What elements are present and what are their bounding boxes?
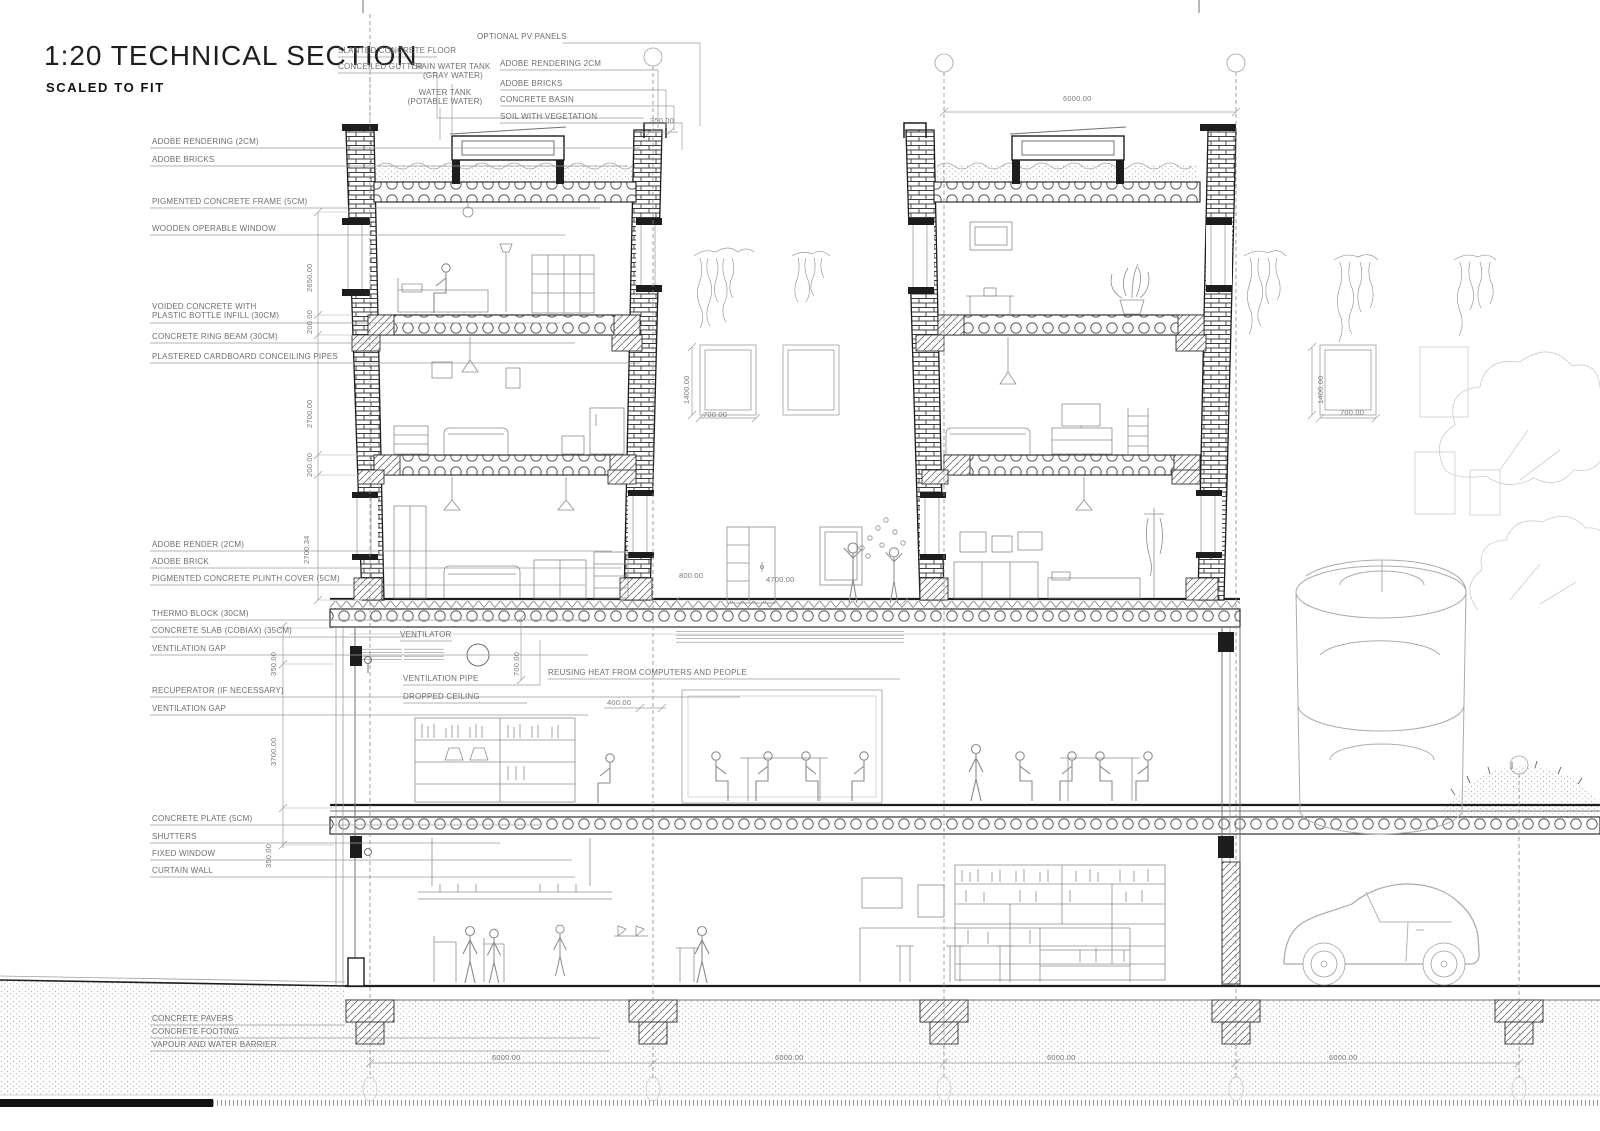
office-floor <box>415 690 1140 803</box>
callout-soil-with-vegetation: SOIL WITH VEGETATION <box>500 112 597 121</box>
dim-window-width-left: 700.00 <box>703 410 727 419</box>
dim-window-width-right: 700.00 <box>1340 408 1364 417</box>
callout-optional-pv-panels: OPTIONAL PV PANELS <box>477 32 567 41</box>
dim-slab-200b: 200.00 <box>305 453 314 477</box>
callout-ventilator: VENTILATOR <box>400 630 452 639</box>
border-strip <box>0 1099 1600 1107</box>
dim-slabzone-350b: 350.00 <box>264 844 273 868</box>
callout-concrete-slab-cobiax: CONCRETE SLAB (COBIAX) (35CM) <box>152 626 292 635</box>
callout-water-tank: WATER TANK (POTABLE WATER) <box>400 88 490 106</box>
dim-office-3700: 3700.00 <box>269 737 278 766</box>
dimension-lines <box>279 108 1523 1067</box>
callout-plinth-cover: PIGMENTED CONCRETE PLINTH COVER (5CM) <box>152 574 340 583</box>
callout-adobe-brick: ADOBE BRICK <box>152 557 209 566</box>
dim-window-height-right: 1400.00 <box>1316 375 1325 404</box>
dim-bay-3: 6000.00 <box>1047 1053 1076 1062</box>
callout-ventilation-pipe: VENTILATION PIPE <box>403 674 479 683</box>
dim-slab-200a: 200.00 <box>305 310 314 334</box>
dim-slabzone-350a: 350.00 <box>269 652 278 676</box>
dim-window-height-left: 1400.00 <box>682 375 691 404</box>
office-slab <box>330 805 1600 834</box>
callout-concrete-pavers: CONCRETE PAVERS <box>152 1014 233 1023</box>
dim-floor2-2700: 2700.00 <box>305 399 314 428</box>
exterior-wall-right <box>1218 628 1240 985</box>
dim-ceiling-400: 400.00 <box>607 698 631 707</box>
callout-adobe-bricks: ADOBE BRICKS <box>152 155 214 164</box>
callout-slanted-concrete-floor: SLANTED CONCRETE FLOOR <box>338 46 456 55</box>
dim-terrace-800: 800.00 <box>679 571 703 580</box>
callout-adobe-render: ADOBE RENDER (2CM) <box>152 540 244 549</box>
callout-ventilation-gap-2: VENTILATION GAP <box>152 704 226 713</box>
dropped-ceiling-hatch <box>676 629 904 645</box>
dim-duct-700: 700.00 <box>512 652 521 676</box>
dim-gutter-350: 350.00 <box>650 116 674 125</box>
wooden-operable-window <box>342 218 370 296</box>
technical-section-sheet: 1:20 TECHNICAL SECTION SCALED TO FIT SLA… <box>0 0 1600 1131</box>
right-tower <box>904 123 1236 600</box>
dim-bay-1: 6000.00 <box>492 1053 521 1062</box>
right-tower-furniture <box>946 222 1164 598</box>
callout-adobe-bricks-top: ADOBE BRICKS <box>500 79 562 88</box>
callout-pigmented-concrete-frame: PIGMENTED CONCRETE FRAME (5CM) <box>152 197 307 206</box>
callout-wooden-operable-window: WOODEN OPERABLE WINDOW <box>152 224 276 233</box>
dim-bay-2: 6000.00 <box>775 1053 804 1062</box>
spiral-ramp <box>1296 560 1466 834</box>
callout-fixed-window: FIXED WINDOW <box>152 849 215 858</box>
callout-ventilation-gap-1: VENTILATION GAP <box>152 644 226 653</box>
callout-concrete-ring-beam: CONCRETE RING BEAM (30CM) <box>152 332 278 341</box>
callout-curtain-wall: CURTAIN WALL <box>152 866 213 875</box>
curtain-wall-left <box>336 628 372 986</box>
dim-terrace-4700: 4700.00 <box>766 575 795 584</box>
callout-dropped-ceiling: DROPPED CEILING <box>403 692 480 701</box>
terrace-slab <box>330 599 1240 666</box>
callout-concrete-plate: CONCRETE PLATE (5CM) <box>152 814 252 823</box>
section-drawing <box>0 0 1600 1131</box>
dim-floor3-2650: 2650.00 <box>305 263 314 292</box>
sheet-subtitle: SCALED TO FIT <box>46 80 165 95</box>
callout-thermo-block: THERMO BLOCK (30CM) <box>152 609 249 618</box>
callout-recuperator: RECUPERATOR (IF NECESSARY) <box>152 686 284 695</box>
callout-vapour-water-barrier: VAPOUR AND WATER BARRIER <box>152 1040 277 1049</box>
callout-concrete-footing: CONCRETE FOOTING <box>152 1027 239 1036</box>
dim-bay-4: 6000.00 <box>1329 1053 1358 1062</box>
callout-voided-concrete: VOIDED CONCRETE WITH PLASTIC BOTTLE INFI… <box>152 302 279 320</box>
dim-top-span-6000: 6000.00 <box>1063 94 1092 103</box>
callout-adobe-rendering-2cm: ADOBE RENDERING 2CM <box>500 59 601 68</box>
left-tower <box>342 123 666 600</box>
callout-plastered-cardboard: PLASTERED CARDBOARD CONCEILING PIPES <box>152 352 338 361</box>
callout-shutters: SHUTTERS <box>152 832 197 841</box>
callout-adobe-rendering: ADOBE RENDERING (2CM) <box>152 137 259 146</box>
callout-concrete-basin: CONCRETE BASIN <box>500 95 574 104</box>
trees <box>1439 352 1600 610</box>
dim-floor1-2700-34: 2700.34 <box>302 535 311 564</box>
ground-floor <box>418 838 1165 982</box>
callout-rain-water-tank: RAIN WATER TANK (GRAY WATER) <box>408 62 498 80</box>
car <box>1284 884 1479 985</box>
callout-reusing-heat: REUSING HEAT FROM COMPUTERS AND PEOPLE <box>548 668 747 677</box>
left-tower-furniture <box>394 202 628 598</box>
